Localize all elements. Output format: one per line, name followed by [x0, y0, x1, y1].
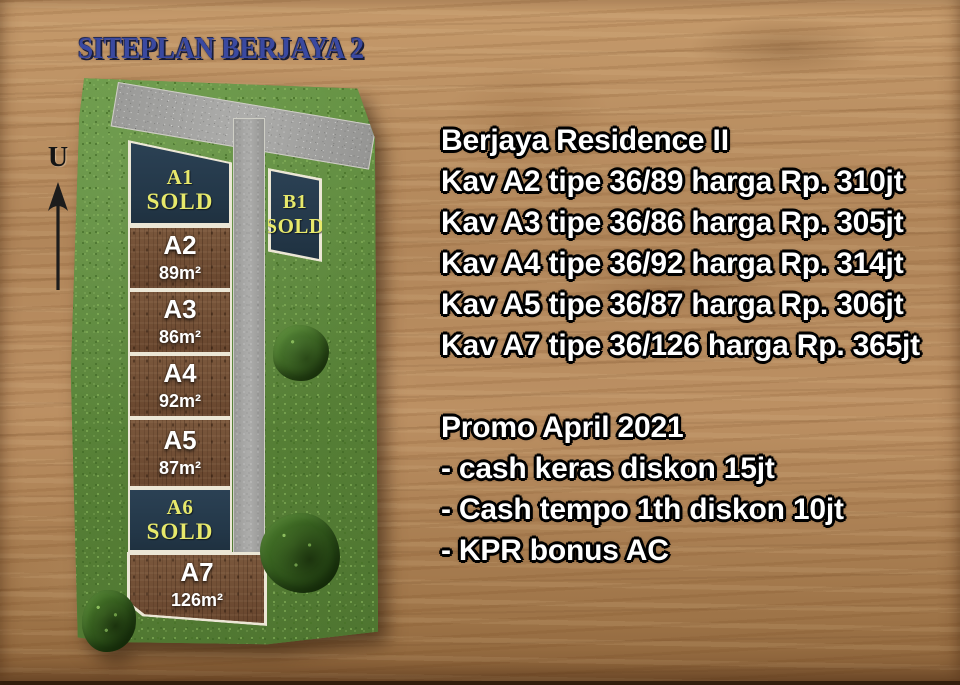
- list-item: - cash keras diskon 15jt: [441, 448, 946, 489]
- page-title: SITEPLAN BERJAYA 2: [78, 30, 364, 66]
- plot-id-label: A2: [163, 231, 196, 260]
- plot-a3: A3 86m²: [128, 290, 232, 354]
- plot-a1: A1 SOLD: [128, 140, 232, 226]
- siteplan-flyer: SITEPLAN BERJAYA 2 U A1 SOLD A2 89m² A3: [0, 0, 960, 685]
- list-item: Kav A5 tipe 36/87 harga Rp. 306jt: [441, 284, 946, 325]
- plot-area-label: 126m²: [171, 590, 223, 612]
- road-vertical: [233, 118, 265, 555]
- promo-list: - cash keras diskon 15jt- Cash tempo 1th…: [441, 448, 946, 571]
- plot-a4: A4 92m²: [128, 354, 232, 418]
- plot-area-label: 89m²: [159, 263, 201, 285]
- list-item: - Cash tempo 1th diskon 10jt: [441, 489, 946, 530]
- plot-status-label: SOLD: [147, 189, 214, 215]
- tree-icon: [273, 325, 329, 381]
- list-item: - KPR bonus AC: [441, 530, 946, 571]
- plot-id-label: B1: [283, 191, 307, 214]
- plot-id-label: A3: [163, 295, 196, 324]
- plot-a2: A2 89m²: [128, 226, 232, 290]
- spacer: [441, 366, 946, 407]
- plot-status-label: SOLD: [265, 214, 324, 238]
- plot-area-label: 86m²: [159, 327, 201, 349]
- tree-icon: [82, 590, 136, 652]
- plot-a5: A5 87m²: [128, 418, 232, 488]
- plot-area-label: 92m²: [159, 391, 201, 413]
- list-item: Kav A2 tipe 36/89 harga Rp. 310jt: [441, 161, 946, 202]
- image-bottom-edge: [0, 681, 960, 685]
- siteplan-map: A1 SOLD A2 89m² A3 86m² A4 92m² A5 87m² …: [62, 76, 378, 650]
- plot-id-label: A5: [163, 426, 196, 455]
- residence-heading: Berjaya Residence II: [441, 120, 946, 161]
- list-item: Kav A4 tipe 36/92 harga Rp. 314jt: [441, 243, 946, 284]
- plot-a7: A7 126m²: [127, 552, 267, 626]
- plot-a6: A6 SOLD: [128, 488, 232, 552]
- plot-area-label: 87m²: [159, 458, 201, 480]
- list-item: Kav A3 tipe 36/86 harga Rp. 305jt: [441, 202, 946, 243]
- list-item: Kav A7 tipe 36/126 harga Rp. 365jt: [441, 325, 946, 366]
- plot-status-label: SOLD: [147, 519, 214, 545]
- info-panel: Berjaya Residence II Kav A2 tipe 36/89 h…: [441, 120, 946, 571]
- promo-heading: Promo April 2021: [441, 407, 946, 448]
- plot-id-label: A7: [180, 558, 213, 587]
- plot-id-label: A6: [167, 495, 194, 519]
- plot-b1: B1 SOLD: [268, 168, 322, 262]
- price-list: Kav A2 tipe 36/89 harga Rp. 310jtKav A3 …: [441, 161, 946, 366]
- plot-id-label: A4: [163, 359, 196, 388]
- plot-id-label: A1: [167, 165, 194, 189]
